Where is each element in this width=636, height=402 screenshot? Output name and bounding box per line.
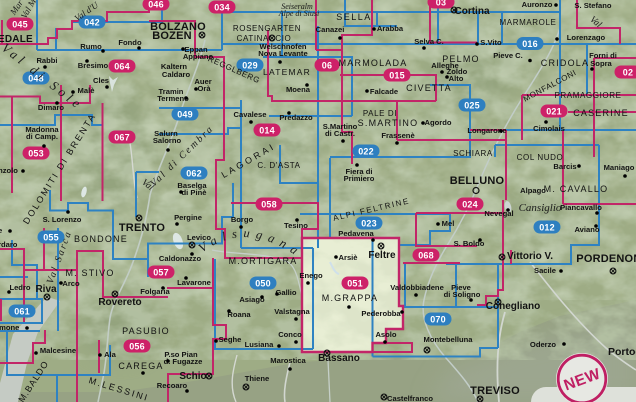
svg-text:Predazzo: Predazzo <box>279 113 313 122</box>
svg-text:S. Stefano: S. Stefano <box>574 1 611 10</box>
svg-text:056: 056 <box>129 342 145 352</box>
svg-text:016: 016 <box>522 39 538 49</box>
svg-text:Asolo: Asolo <box>375 330 396 339</box>
svg-text:057: 057 <box>153 268 169 278</box>
svg-text:MARMOLADA: MARMOLADA <box>339 58 408 68</box>
svg-text:LATEMAR: LATEMAR <box>263 67 311 77</box>
svg-text:014: 014 <box>259 126 275 136</box>
svg-text:024: 024 <box>462 200 478 210</box>
svg-text:058: 058 <box>261 200 277 210</box>
svg-text:Malcesine: Malcesine <box>40 346 76 355</box>
svg-text:Conco: Conco <box>278 330 302 339</box>
svg-text:Portog: Portog <box>608 346 636 358</box>
svg-text:rdaro: rdaro <box>0 240 18 249</box>
svg-text:M.GRAPPA: M.GRAPPA <box>322 293 378 303</box>
svg-text:di Pinè: di Pinè <box>182 188 207 197</box>
svg-text:015: 015 <box>389 71 405 81</box>
svg-text:062: 062 <box>186 169 202 179</box>
svg-text:S.Vito: S.Vito <box>480 38 502 47</box>
svg-text:022: 022 <box>358 147 374 157</box>
svg-text:025: 025 <box>464 101 480 111</box>
svg-text:049: 049 <box>177 110 193 120</box>
svg-text:Ledro: Ledro <box>9 283 30 292</box>
svg-text:Lavarone: Lavarone <box>177 278 211 287</box>
svg-text:046: 046 <box>148 0 164 10</box>
svg-text:MARMAROLE: MARMAROLE <box>500 18 557 27</box>
svg-text:Caldaro: Caldaro <box>162 70 191 79</box>
svg-text:067: 067 <box>114 133 130 143</box>
svg-text:PASUBIO: PASUBIO <box>122 326 170 336</box>
svg-text:Pieve C.: Pieve C. <box>493 51 523 60</box>
svg-text:Sopra: Sopra <box>590 59 612 68</box>
svg-text:Cortina: Cortina <box>455 6 490 17</box>
svg-text:TRENTO: TRENTO <box>119 222 165 234</box>
svg-text:02: 02 <box>623 68 633 78</box>
svg-text:06: 06 <box>322 61 332 71</box>
svg-text:Sacile: Sacile <box>534 266 556 275</box>
svg-text:Salorno: Salorno <box>153 136 182 145</box>
svg-text:070: 070 <box>430 315 446 325</box>
svg-text:COL NUDO: COL NUDO <box>517 153 564 162</box>
svg-text:Oderzo: Oderzo <box>530 340 557 349</box>
svg-text:M.ORTIGARA: M.ORTIGARA <box>229 256 298 266</box>
svg-text:055: 055 <box>43 233 59 243</box>
svg-text:Barcis: Barcis <box>553 162 576 171</box>
svg-text:CAREGA: CAREGA <box>118 361 163 371</box>
svg-text:Gallio: Gallio <box>275 288 296 297</box>
svg-text:di Castr.: di Castr. <box>325 129 355 138</box>
svg-text:Arabba: Arabba <box>377 24 404 33</box>
svg-text:Auronzo: Auronzo <box>522 0 553 9</box>
svg-text:Fondo: Fondo <box>118 38 142 47</box>
svg-text:PRAMAGGIORE: PRAMAGGIORE <box>554 91 621 100</box>
svg-text:imone: imone <box>0 323 19 332</box>
svg-text:Malè: Malè <box>78 86 95 95</box>
svg-text:CASERINE: CASERINE <box>573 108 629 118</box>
svg-text:Mel: Mel <box>442 219 455 228</box>
svg-text:Valstagna: Valstagna <box>274 307 310 316</box>
svg-text:Nova Levante: Nova Levante <box>258 49 307 58</box>
svg-text:Marostica: Marostica <box>270 356 306 365</box>
svg-text:Maniago: Maniago <box>604 163 635 172</box>
svg-text:061: 061 <box>14 307 30 317</box>
svg-text:di Soligno: di Soligno <box>444 290 481 299</box>
svg-text:Arco: Arco <box>62 279 80 288</box>
svg-text:03: 03 <box>436 0 446 8</box>
svg-text:CIVETTA: CIVETTA <box>406 83 452 93</box>
svg-text:Piancavallo: Piancavallo <box>560 203 602 212</box>
svg-text:TREVISO: TREVISO <box>470 385 520 397</box>
svg-text:Vittorio V.: Vittorio V. <box>507 251 553 262</box>
svg-text:S. Lorenzo: S. Lorenzo <box>43 215 82 224</box>
svg-text:Castelfranco: Castelfranco <box>387 394 433 402</box>
svg-text:Lorenzago: Lorenzago <box>567 33 606 42</box>
svg-text:034: 034 <box>214 3 230 13</box>
svg-text:Enego: Enego <box>299 271 323 280</box>
svg-text:Cavalese: Cavalese <box>234 110 267 119</box>
svg-text:e: e <box>0 226 2 235</box>
svg-text:Selva C.: Selva C. <box>414 37 444 46</box>
svg-text:SCHIARA: SCHIARA <box>453 149 493 158</box>
svg-text:Alpe di Siusi: Alpe di Siusi <box>278 9 319 18</box>
svg-text:Roana: Roana <box>227 310 251 319</box>
svg-text:068: 068 <box>418 251 434 261</box>
svg-text:Arsiè: Arsiè <box>339 253 358 262</box>
svg-text:Rovereto: Rovereto <box>98 297 141 308</box>
svg-text:012: 012 <box>539 223 555 233</box>
svg-text:Tesino: Tesino <box>284 221 308 230</box>
svg-text:Thiene: Thiene <box>245 374 269 383</box>
svg-text:045: 045 <box>12 20 28 30</box>
svg-text:021: 021 <box>546 107 562 117</box>
svg-text:C. D'ASTA: C. D'ASTA <box>257 161 300 170</box>
svg-text:Alpago: Alpago <box>520 186 546 195</box>
svg-text:di Camp.: di Camp. <box>26 132 58 141</box>
svg-text:Lusiana: Lusiana <box>245 340 274 349</box>
svg-text:Ala: Ala <box>104 350 117 359</box>
svg-text:inzolo: inzolo <box>0 166 18 175</box>
svg-text:023: 023 <box>361 219 377 229</box>
svg-text:Caldonazzo: Caldonazzo <box>159 254 202 263</box>
svg-text:Pedavena: Pedavena <box>338 229 374 238</box>
svg-text:051: 051 <box>347 279 363 289</box>
svg-text:Bresimo: Bresimo <box>78 61 109 70</box>
svg-text:S.MARTINO: S.MARTINO <box>358 118 419 128</box>
svg-text:Frassenè: Frassenè <box>381 131 414 140</box>
svg-text:Cles: Cles <box>93 76 109 85</box>
svg-text:Orà: Orà <box>197 84 211 93</box>
svg-text:Dimaro: Dimaro <box>38 103 65 112</box>
svg-text:053: 053 <box>28 149 44 159</box>
svg-text:Conegliano: Conegliano <box>486 301 540 312</box>
svg-text:BOZEN: BOZEN <box>152 30 192 42</box>
svg-text:Montebelluna: Montebelluna <box>424 335 474 344</box>
svg-text:Falcade: Falcade <box>370 87 398 96</box>
svg-text:Canazei: Canazei <box>316 25 345 34</box>
svg-text:050: 050 <box>255 279 271 289</box>
svg-text:PORDENONE: PORDENONE <box>576 253 636 265</box>
svg-text:ROSENGARTEN: ROSENGARTEN <box>233 24 301 33</box>
svg-text:Pederobba: Pederobba <box>361 309 401 318</box>
svg-text:Seghe: Seghe <box>219 335 242 344</box>
svg-text:Agordo: Agordo <box>425 118 452 127</box>
svg-text:Folgaria: Folgaria <box>140 287 170 296</box>
svg-text:Pergine: Pergine <box>174 213 202 222</box>
svg-text:Valdobbiadene: Valdobbiadene <box>390 283 444 292</box>
svg-text:Primiero: Primiero <box>344 174 375 183</box>
svg-text:Alto: Alto <box>449 74 464 83</box>
svg-text:SELLA: SELLA <box>336 12 372 22</box>
svg-text:Cimolais: Cimolais <box>533 124 565 133</box>
svg-text:Feltre: Feltre <box>368 250 396 261</box>
svg-text:M. STIVO: M. STIVO <box>65 268 114 278</box>
svg-text:064: 064 <box>114 62 130 72</box>
svg-text:Cansiglio: Cansiglio <box>519 202 562 214</box>
svg-text:CRIDOLA: CRIDOLA <box>541 58 589 68</box>
svg-text:PALE DI: PALE DI <box>363 109 397 118</box>
svg-text:M. CAVALLO: M. CAVALLO <box>544 184 609 194</box>
svg-text:Recoaro: Recoaro <box>157 381 188 390</box>
svg-text:042: 042 <box>84 18 100 28</box>
svg-text:BONDONE: BONDONE <box>74 234 128 244</box>
svg-text:BELLUNO: BELLUNO <box>450 175 505 187</box>
svg-text:Borgo: Borgo <box>231 215 254 224</box>
svg-text:Rumo: Rumo <box>80 42 102 51</box>
